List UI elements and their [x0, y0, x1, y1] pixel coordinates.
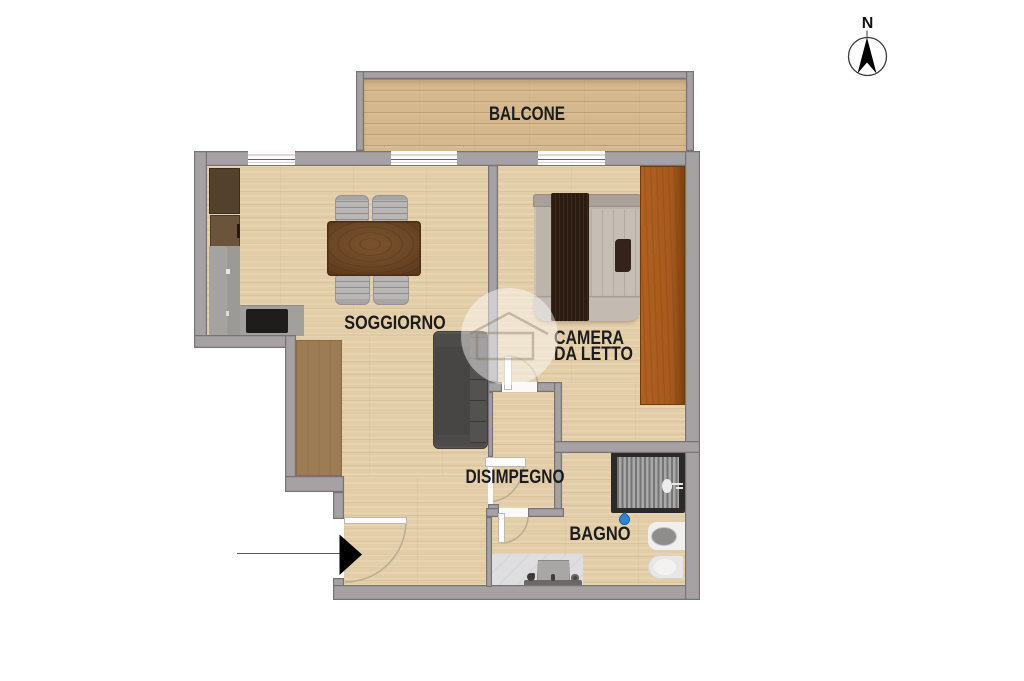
svg-text:N: N: [862, 15, 874, 32]
